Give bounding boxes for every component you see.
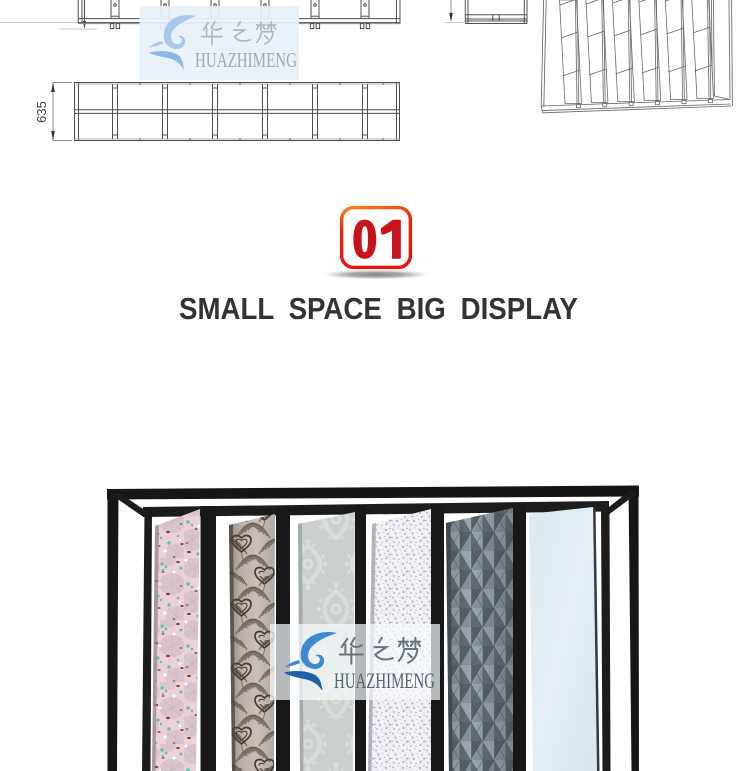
svg-text:635: 635 <box>34 101 49 123</box>
svg-text:SMALL SPACE BIG DISPLAY: SMALL SPACE BIG DISPLAY <box>179 291 578 326</box>
svg-text:HUAZHIMENG: HUAZHIMENG <box>334 668 435 693</box>
svg-text:HUAZHIMENG: HUAZHIMENG <box>195 48 297 72</box>
